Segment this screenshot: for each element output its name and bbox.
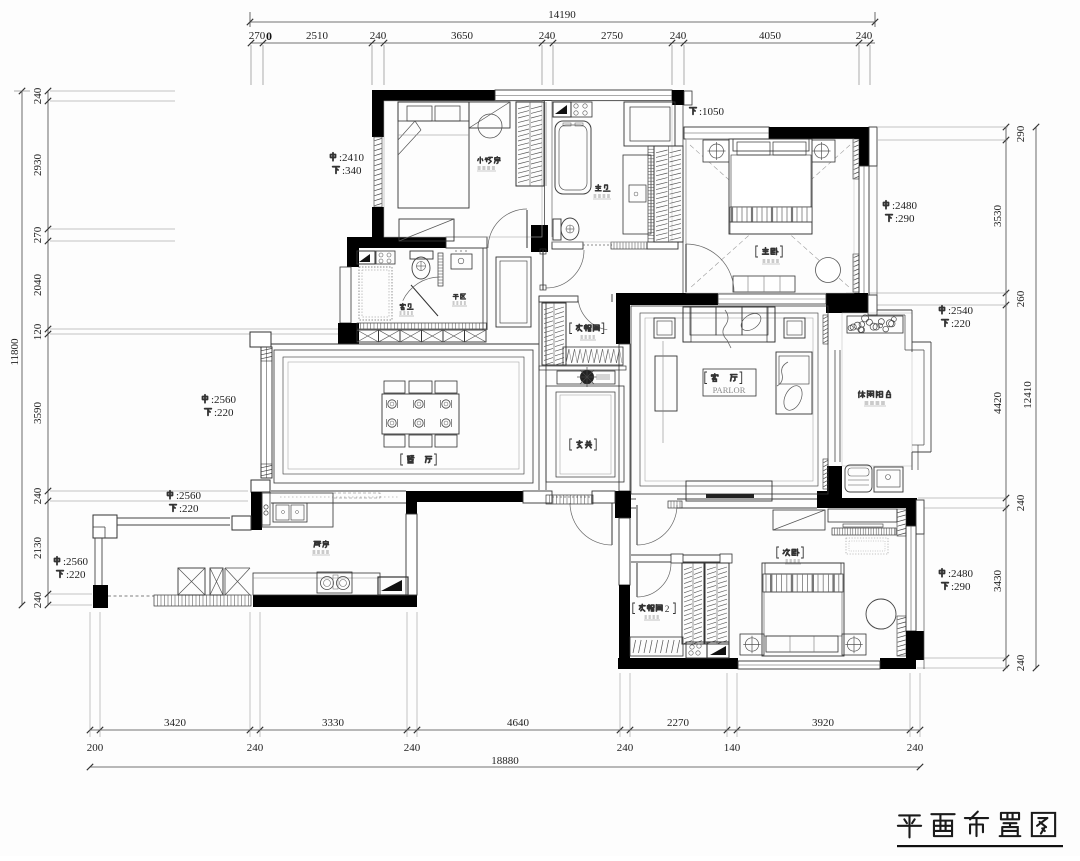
svg-text:11800: 11800	[9, 338, 21, 366]
svg-text:120: 120	[32, 323, 44, 340]
svg-text:240: 240	[404, 742, 421, 754]
svg-text::290: :290	[951, 581, 971, 593]
svg-text:240: 240	[617, 742, 634, 754]
svg-text:270: 270	[32, 226, 44, 243]
svg-text:240: 240	[670, 30, 687, 42]
svg-text:2750: 2750	[601, 30, 624, 42]
svg-text::220: :220	[951, 318, 971, 330]
svg-text:18880: 18880	[491, 755, 519, 767]
svg-text::2540: :2540	[948, 305, 974, 317]
svg-text:12410: 12410	[1022, 381, 1034, 409]
svg-text:4050: 4050	[759, 30, 782, 42]
svg-text:240: 240	[856, 30, 873, 42]
svg-text:240: 240	[247, 742, 264, 754]
svg-text:240: 240	[370, 30, 387, 42]
svg-text::2410: :2410	[339, 152, 365, 164]
svg-text:3920: 3920	[812, 717, 835, 729]
svg-text:2130: 2130	[32, 537, 44, 560]
svg-text:140: 140	[724, 742, 741, 754]
svg-text:3420: 3420	[164, 717, 187, 729]
svg-text:4420: 4420	[992, 392, 1004, 415]
svg-text:240: 240	[539, 30, 556, 42]
svg-text::220: :220	[179, 503, 199, 515]
svg-text::2480: :2480	[892, 200, 918, 212]
svg-text:0: 0	[266, 29, 272, 43]
svg-text:200: 200	[87, 742, 104, 754]
svg-text::2480: :2480	[948, 568, 974, 580]
svg-text:240: 240	[32, 87, 44, 104]
svg-text:240: 240	[32, 487, 44, 504]
svg-text::2560: :2560	[63, 556, 89, 568]
svg-text:2: 2	[665, 605, 670, 615]
svg-text:2040: 2040	[32, 274, 44, 297]
svg-text:3430: 3430	[992, 570, 1004, 593]
svg-text:240: 240	[32, 591, 44, 608]
svg-text::1050: :1050	[699, 106, 725, 118]
svg-text:240: 240	[1015, 494, 1027, 511]
svg-text:260: 260	[1015, 290, 1027, 307]
svg-text::2560: :2560	[211, 394, 237, 406]
svg-text:3650: 3650	[451, 30, 474, 42]
svg-text:240: 240	[907, 742, 924, 754]
svg-text::220: :220	[66, 569, 86, 581]
svg-text:2930: 2930	[32, 154, 44, 177]
svg-text:2510: 2510	[306, 30, 329, 42]
svg-text:290: 290	[1015, 125, 1027, 142]
svg-text:240: 240	[1015, 654, 1027, 671]
svg-text::290: :290	[895, 213, 915, 225]
svg-text:4640: 4640	[507, 717, 530, 729]
svg-text:PARLOR: PARLOR	[713, 385, 746, 395]
svg-text::220: :220	[214, 407, 234, 419]
svg-text:14190: 14190	[548, 9, 576, 21]
svg-text:3590: 3590	[32, 402, 44, 425]
svg-text::2560: :2560	[176, 490, 202, 502]
svg-text:3530: 3530	[992, 205, 1004, 228]
svg-text:270: 270	[249, 30, 266, 42]
svg-text::340: :340	[342, 165, 362, 177]
svg-text:2270: 2270	[667, 717, 690, 729]
svg-text:3330: 3330	[322, 717, 345, 729]
